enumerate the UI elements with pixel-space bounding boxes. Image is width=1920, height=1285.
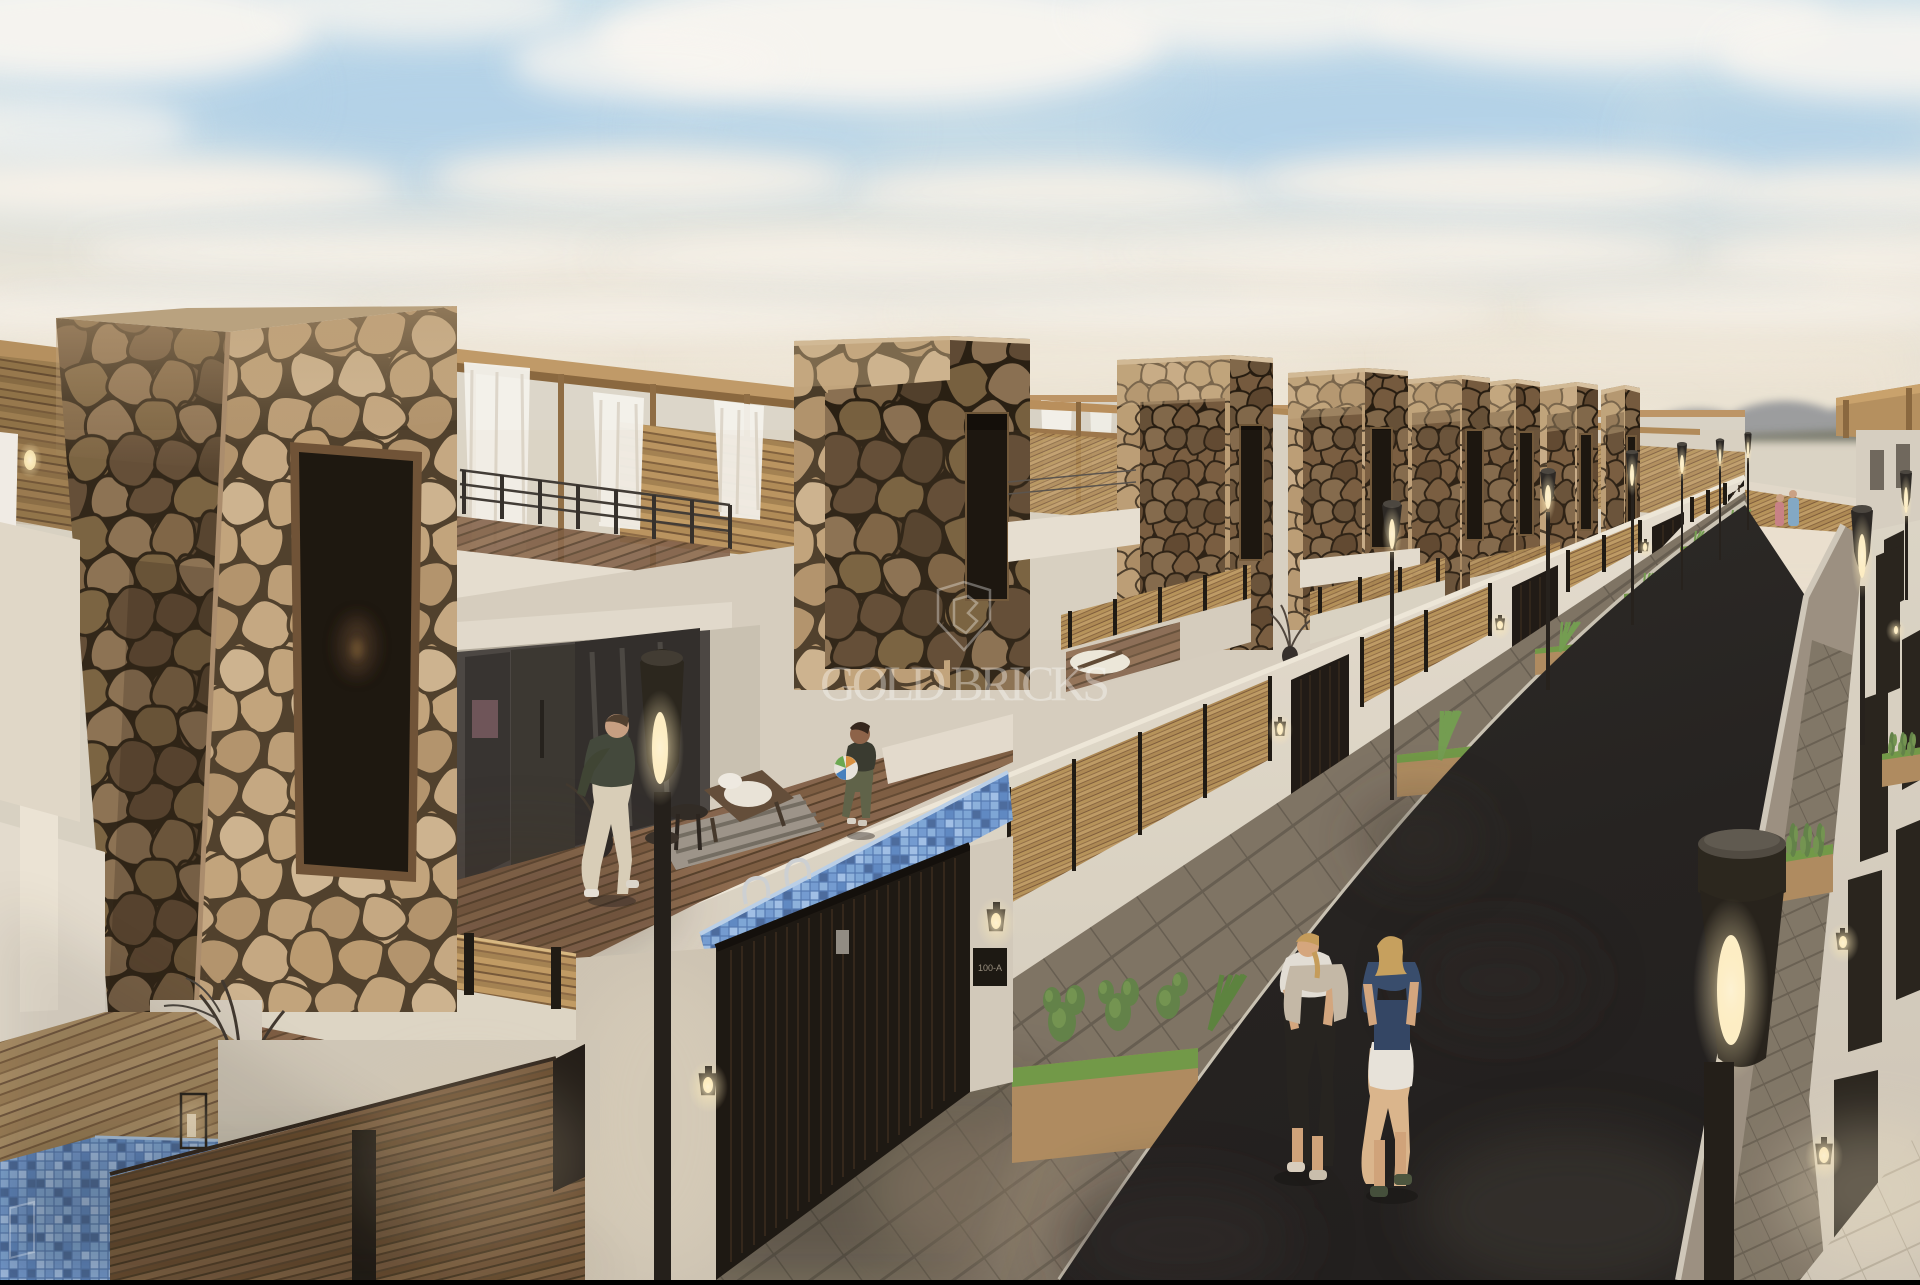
- svg-text:GOLD BRICKS: GOLD BRICKS: [820, 655, 1116, 711]
